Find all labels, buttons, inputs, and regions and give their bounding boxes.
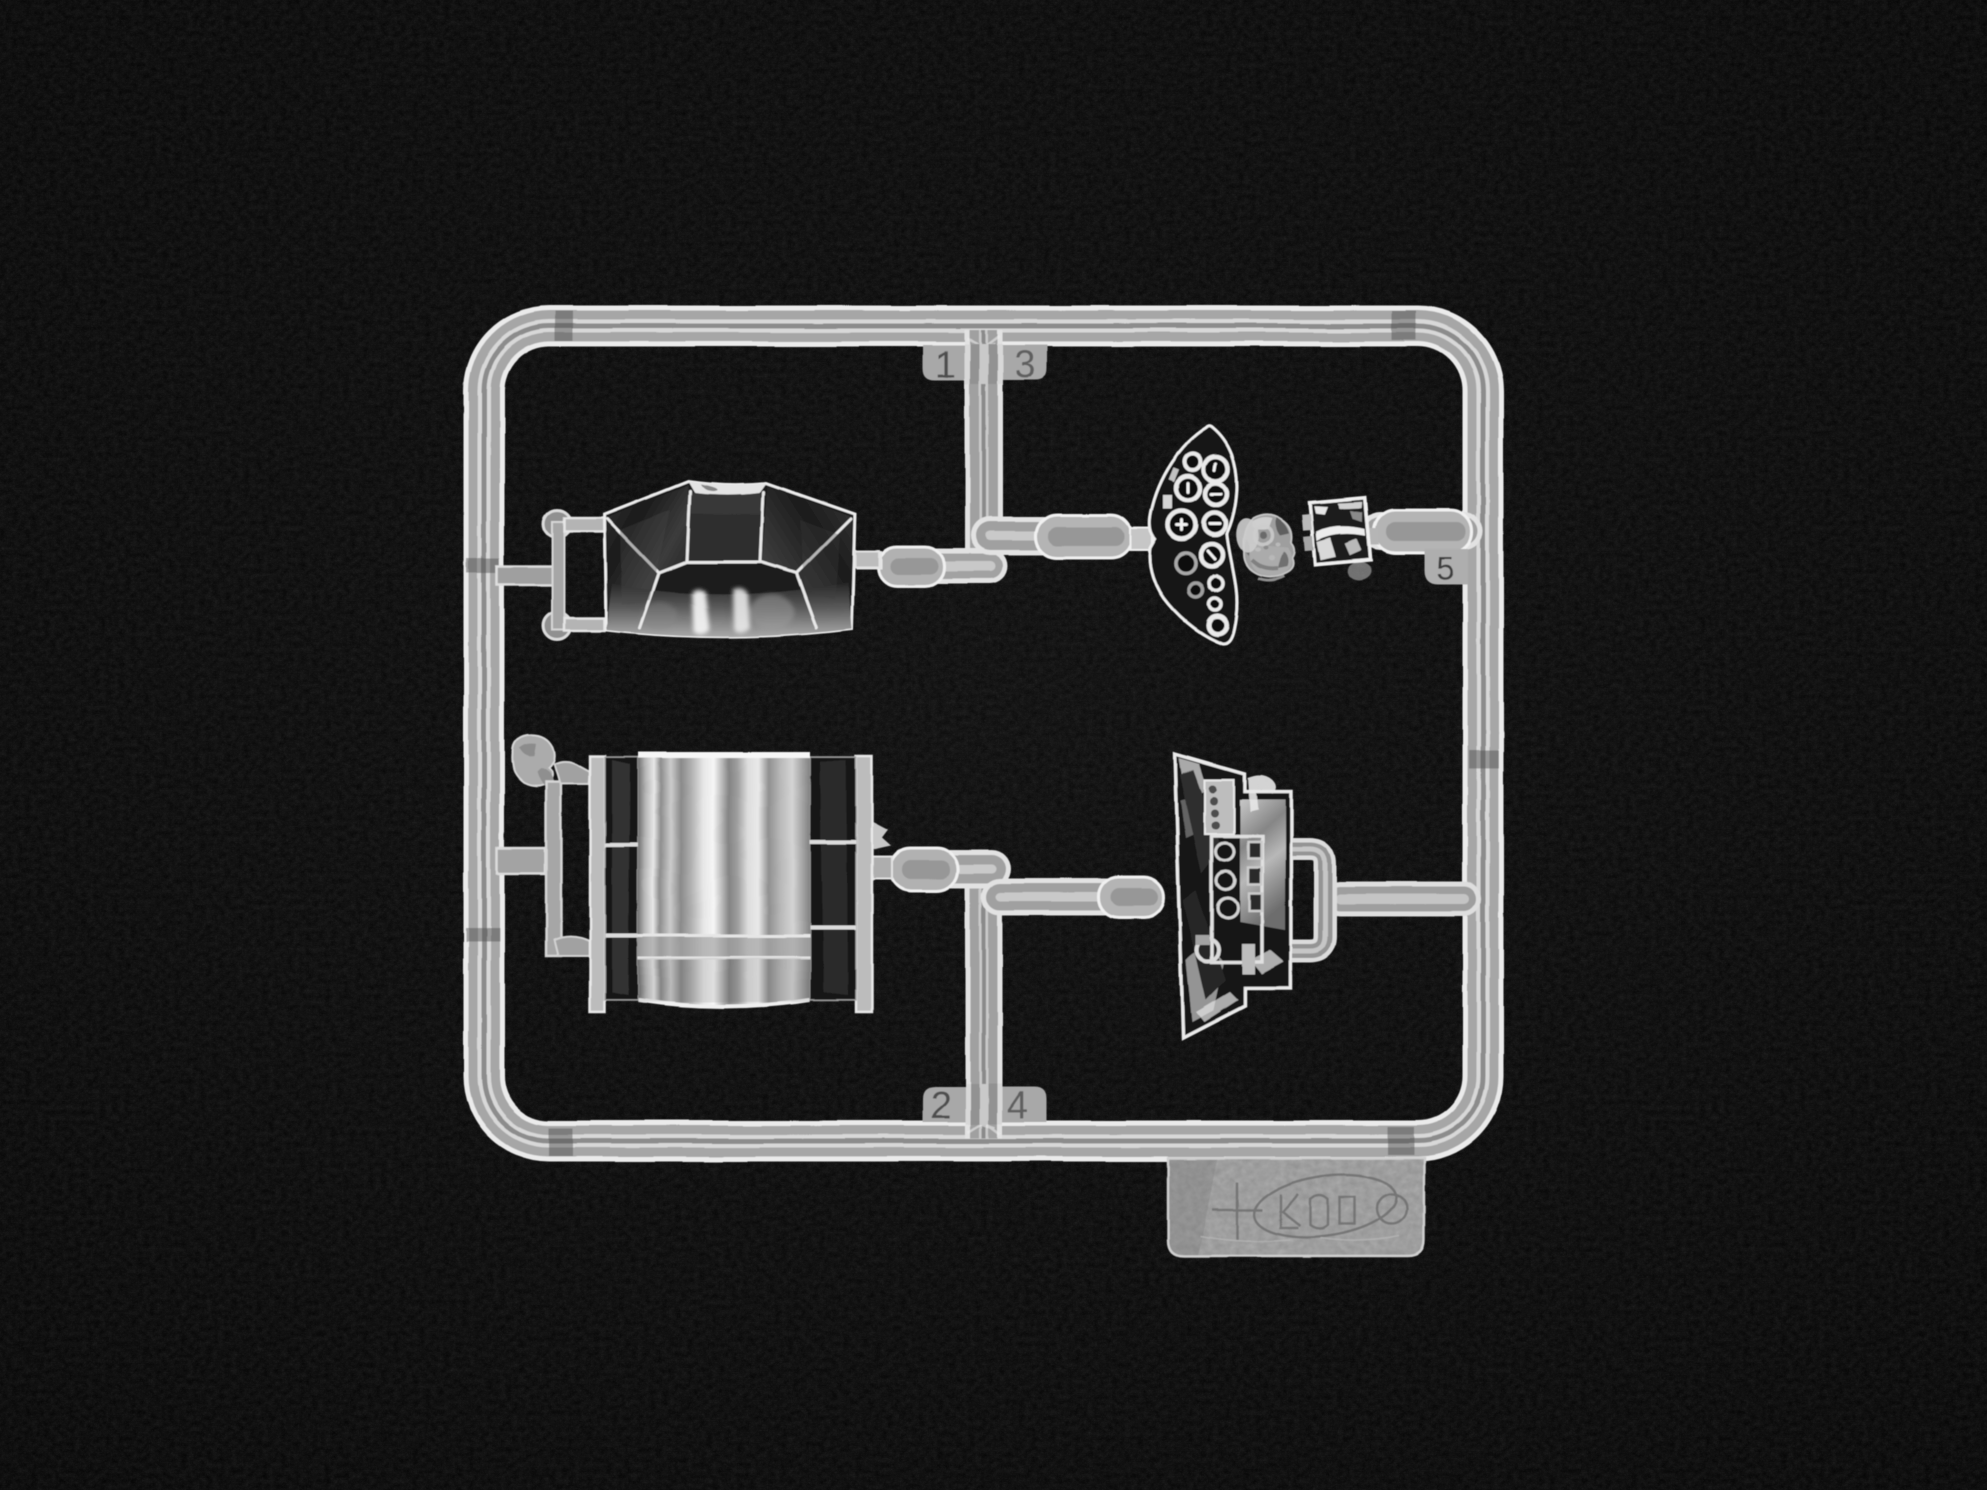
svg-text:3: 3 bbox=[1014, 344, 1035, 386]
svg-text:2: 2 bbox=[930, 1085, 951, 1127]
svg-text:5: 5 bbox=[1436, 550, 1454, 587]
svg-text:4: 4 bbox=[1007, 1085, 1028, 1127]
svg-text:1: 1 bbox=[935, 344, 956, 386]
